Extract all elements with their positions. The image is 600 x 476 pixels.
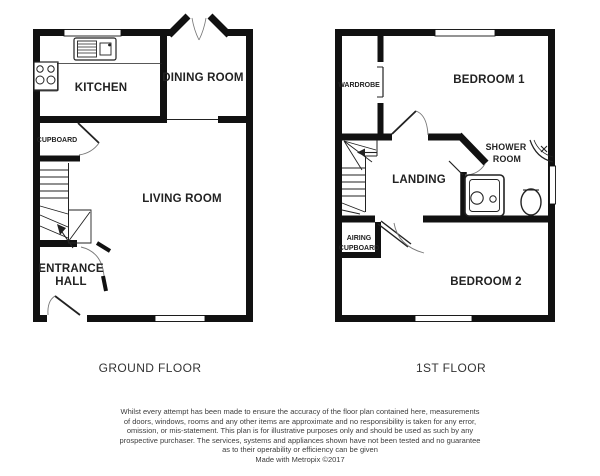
room-label-shower-room-line1: SHOWER [486, 142, 527, 152]
ground-floor-plan: KITCHEN DINING ROOM CUPBOARD LIVING ROOM… [33, 16, 253, 375]
bedroom1-window [435, 30, 495, 37]
ground-stairs-icon [40, 163, 91, 248]
bedroom2-window [415, 316, 472, 322]
room-label-entrance-hall-line2: HALL [55, 276, 86, 288]
disclaimer-line: prospective purchaser. The services, sys… [0, 436, 600, 446]
floor-plan-canvas: KITCHEN DINING ROOM CUPBOARD LIVING ROOM… [0, 0, 600, 400]
room-label-living-room: LIVING ROOM [142, 193, 222, 205]
disclaimer-line: omission, or mis-statement. This plan is… [0, 426, 600, 436]
room-label-bedroom2: BEDROOM 2 [450, 276, 521, 288]
room-label-landing: LANDING [392, 174, 446, 186]
ground-floor-title: GROUND FLOOR [99, 361, 202, 375]
stairs-down-arrow [357, 149, 365, 157]
room-label-entrance-hall-line1: ENTRANCE [38, 263, 104, 275]
hob-icon [34, 62, 58, 90]
shower-tray-icon [465, 175, 504, 216]
shower-room-window [550, 166, 556, 204]
disclaimer-line: as to their operability or efficiency ca… [0, 445, 600, 455]
kitchen-window [64, 30, 121, 37]
first-floor-title: 1ST FLOOR [416, 361, 486, 375]
disclaimer-line: of doors, windows, rooms and any other i… [0, 417, 600, 427]
room-label-shower-room-line2: ROOM [493, 154, 521, 164]
room-label-cupboard: CUPBOARD [37, 137, 77, 144]
living-room-window [155, 316, 205, 322]
toilet-icon [521, 189, 541, 215]
room-label-airing-cupboard-line1: AIRING [347, 235, 372, 242]
room-label-kitchen: KITCHEN [75, 82, 128, 94]
room-label-bedroom1: BEDROOM 1 [453, 74, 525, 86]
french-doors-icon [192, 18, 206, 40]
metropix-credit: Made with Metropix ©2017 [0, 455, 600, 465]
room-label-wardrobe: WARDROBE [338, 82, 380, 89]
room-label-dining-room: DINING ROOM [162, 72, 243, 84]
floor-plan-page: KITCHEN DINING ROOM CUPBOARD LIVING ROOM… [0, 0, 600, 476]
first-stairs-icon [342, 140, 377, 214]
kitchen-sink-icon [74, 38, 116, 60]
first-floor-plan: WARDROBE BEDROOM 1 SHOWER ROOM LANDING A… [335, 30, 556, 376]
disclaimer-line: Whilst every attempt has been made to en… [0, 407, 600, 417]
room-label-airing-cupboard-line2: CUPBOARD [339, 245, 379, 252]
disclaimer: Whilst every attempt has been made to en… [0, 407, 600, 464]
